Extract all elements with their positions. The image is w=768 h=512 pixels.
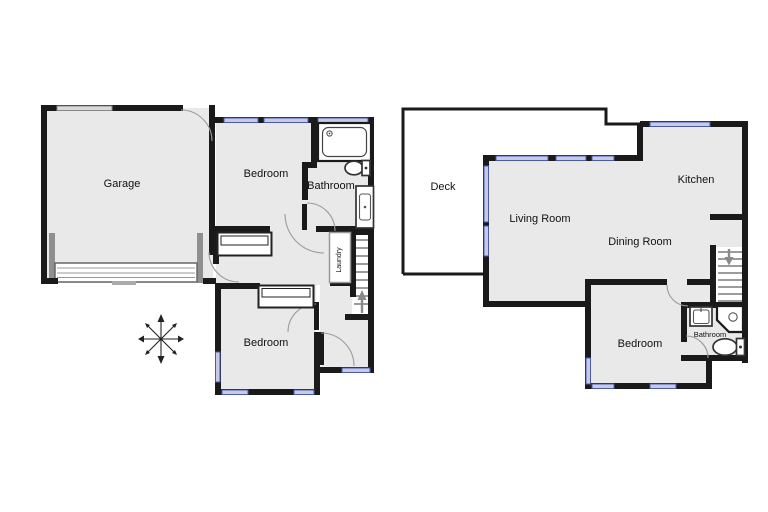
entry-door-leaf (319, 332, 324, 365)
plan-shape (350, 229, 374, 235)
plan-shape (364, 206, 367, 209)
bedroom-2-label: Bedroom (244, 337, 289, 349)
bedroom-2-window (294, 390, 314, 395)
garage-label: Garage (104, 178, 141, 190)
plan-shape (41, 105, 47, 284)
plan-shape (138, 336, 144, 343)
bathroom-1-window (318, 118, 368, 123)
living-room-window (556, 156, 586, 161)
plan-shape (739, 346, 742, 349)
living-room-window (484, 226, 489, 256)
plan-shape (158, 356, 165, 364)
living-room-label: Living Room (509, 213, 570, 225)
bedroom-1-window (224, 118, 258, 123)
plan-shape (710, 214, 748, 220)
plan-shape (213, 226, 270, 232)
plan-shape (311, 120, 317, 168)
plan-shape (585, 279, 667, 285)
living-room-window (496, 156, 548, 161)
sink (690, 307, 712, 326)
plan-shape (345, 314, 374, 320)
hall-strip-area (320, 285, 352, 316)
plan-shape (215, 283, 260, 289)
plan-shape (41, 278, 58, 284)
bedroom-2-window (222, 390, 248, 395)
plan-shape (158, 314, 165, 322)
entry-window (342, 368, 370, 373)
bedroom-2-door-leaf (314, 302, 319, 330)
plan-shape (483, 301, 590, 307)
plan-shape (713, 339, 737, 355)
garage-door-post (49, 233, 55, 283)
vanity-sink (356, 186, 374, 228)
kitchen-label: Kitchen (678, 174, 715, 186)
garage-area (44, 108, 213, 283)
bathroom-2-label: Bathroom (694, 330, 727, 339)
entry-area (320, 314, 372, 369)
plan-shape (329, 133, 331, 135)
plan-shape (345, 161, 363, 175)
dining-room-label: Dining Room (608, 236, 672, 248)
plan-shape (178, 336, 184, 343)
bedroom-1-window (264, 118, 308, 123)
living-room-window (484, 166, 489, 222)
plan-shape (365, 167, 368, 170)
ground-floor-plan: Garage Bedroom Bathroom Laundry Bedroom (41, 105, 374, 395)
kitchen-window (650, 122, 710, 127)
bathroom-door-leaf (302, 204, 307, 230)
plan-shape (710, 245, 716, 308)
bedroom-1-label: Bedroom (244, 168, 289, 180)
upper-floor-plan: Deck Living Room Kitchen Dining Room Bed… (403, 109, 748, 389)
plan-shape (302, 162, 317, 168)
deck-label: Deck (430, 181, 456, 193)
compass-rose-icon (138, 314, 184, 364)
stair-landing-area (712, 216, 744, 247)
bedroom-3-label: Bedroom (618, 338, 663, 350)
staircase-upper (716, 247, 742, 302)
garage-door-handle (112, 281, 136, 285)
floorplan-image: Garage Bedroom Bathroom Laundry Bedroom (0, 0, 768, 512)
floorplan-canvas: Garage Bedroom Bathroom Laundry Bedroom (0, 0, 768, 512)
toilet (345, 161, 370, 176)
bedroom-2-window (216, 352, 221, 382)
garage-window (57, 106, 112, 111)
plan-shape (637, 124, 643, 160)
plan-shape (159, 337, 162, 340)
toilet (713, 339, 745, 356)
bedroom-3-window (586, 358, 591, 384)
garage-door-post (197, 233, 203, 283)
living-room-window (592, 156, 614, 161)
bathtub (318, 123, 371, 161)
bedroom-3-window (592, 384, 614, 389)
bedroom-3-window (650, 384, 676, 389)
bathroom-1-label: Bathroom (307, 180, 355, 192)
laundry-label: Laundry (336, 247, 343, 273)
plan-shape (203, 278, 216, 284)
